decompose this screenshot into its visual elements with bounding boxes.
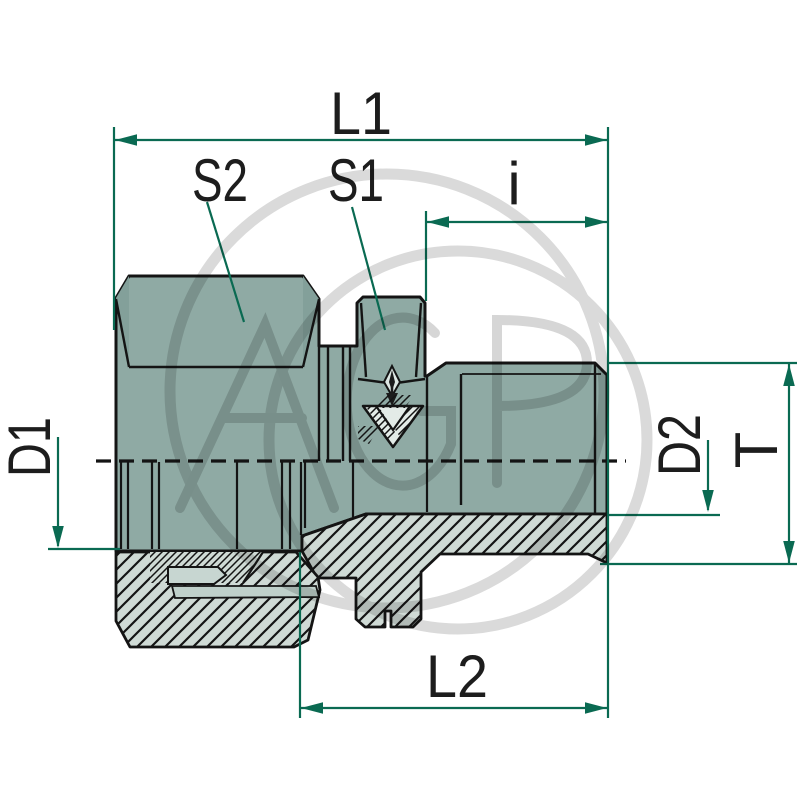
- arrow-i-right: [585, 216, 607, 228]
- body-section-hatch: [302, 514, 607, 627]
- label-s2: S2: [192, 147, 248, 214]
- arrow-l1-left: [115, 134, 137, 146]
- arrow-l2-left: [301, 702, 323, 714]
- arrow-t-bottom: [783, 541, 795, 563]
- arrow-t-top: [783, 364, 795, 386]
- arrow-l2-right: [585, 702, 607, 714]
- label-l1: L1: [330, 80, 392, 147]
- arrow-d2: [702, 490, 714, 512]
- drawing-canvas: L1 S2 S1 i L2 D1 D2 T AGP: [0, 0, 800, 800]
- arrow-l1-right: [585, 134, 607, 146]
- label-d2: D2: [646, 414, 713, 476]
- arrow-i-left: [427, 216, 449, 228]
- label-l2: L2: [426, 643, 488, 710]
- arrow-d1: [52, 526, 64, 548]
- label-d1: D1: [0, 417, 63, 477]
- technical-drawing: L1 S2 S1 i L2 D1 D2 T AGP: [0, 0, 800, 800]
- label-t: T: [723, 432, 790, 469]
